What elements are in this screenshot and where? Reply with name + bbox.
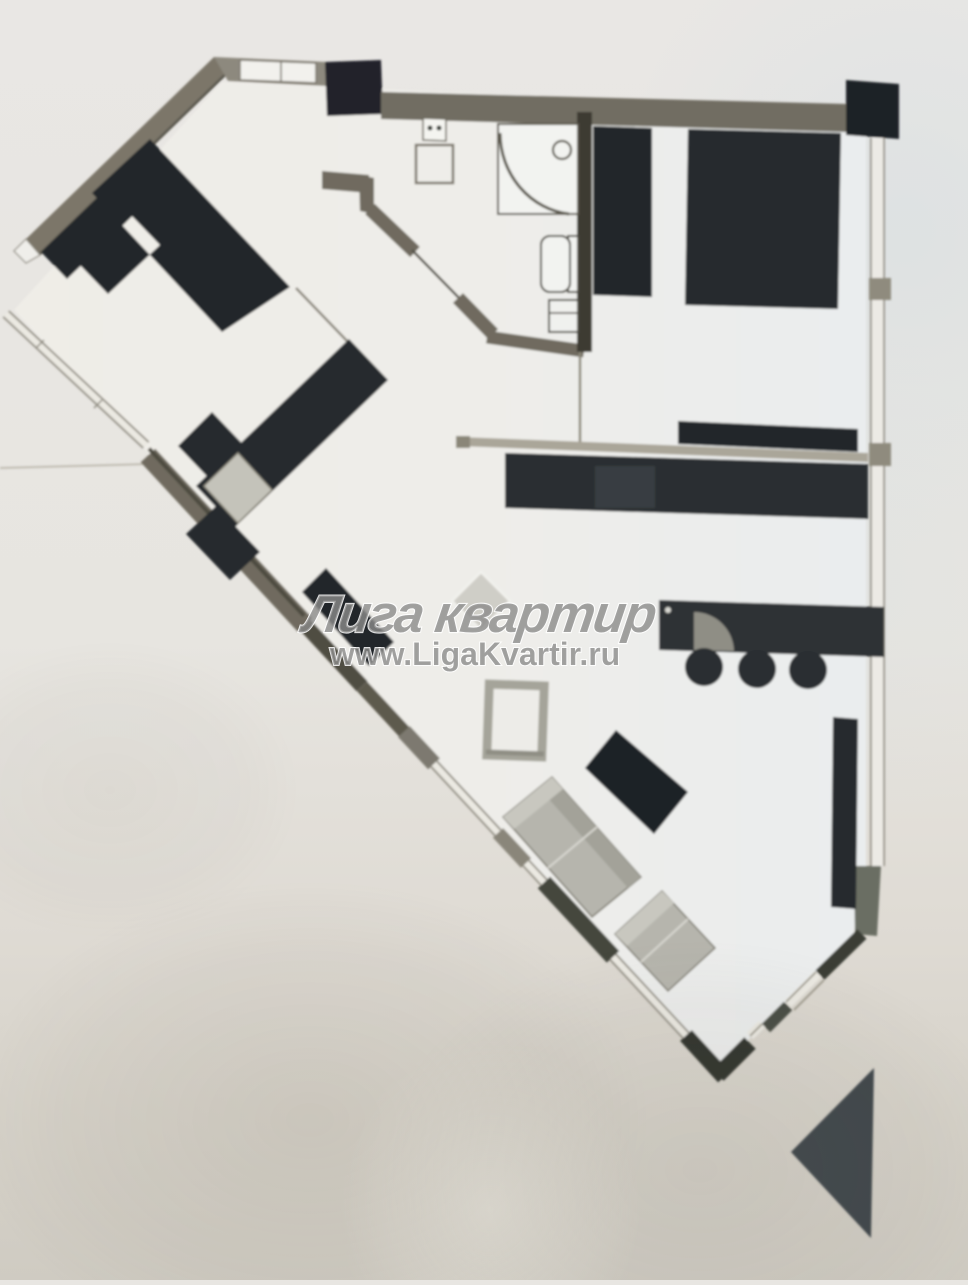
svg-text:www.LigaKvartir.ru: www.LigaKvartir.ru <box>329 636 620 672</box>
